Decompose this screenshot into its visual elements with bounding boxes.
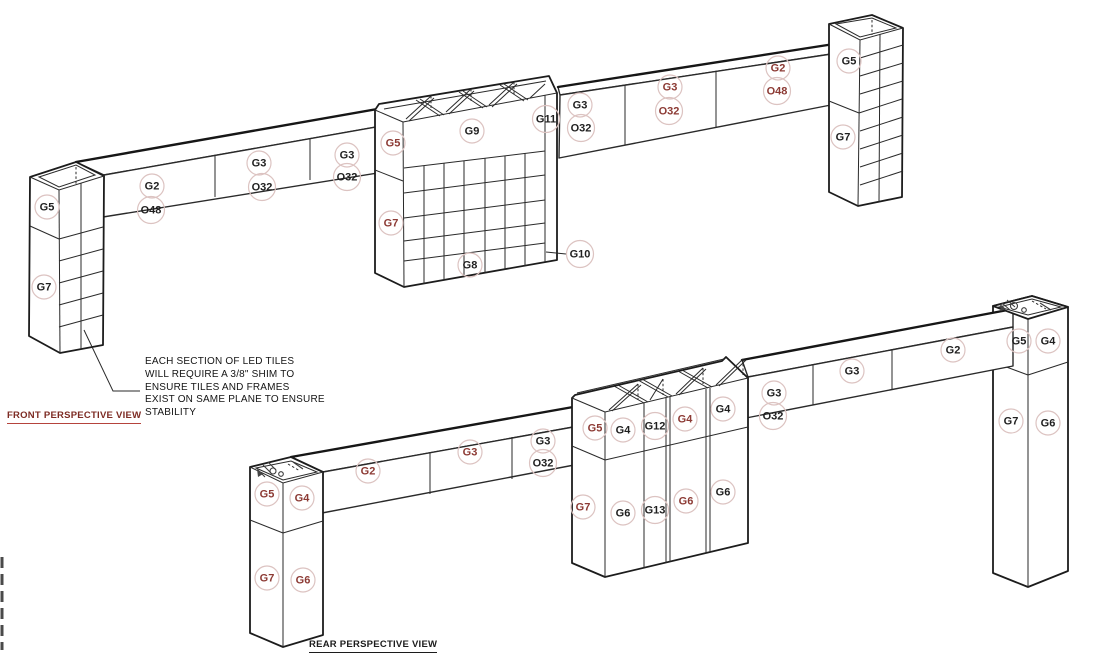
svg-text:G7: G7 [1004, 416, 1019, 428]
svg-text:G8: G8 [463, 260, 478, 272]
svg-text:O32: O32 [571, 123, 592, 135]
front-view-title: FRONT PERSPECTIVE VIEW [7, 410, 141, 424]
shim-annotation-line: STABILITY [145, 407, 325, 420]
svg-text:G6: G6 [679, 496, 694, 508]
shim-annotation-line: ENSURE TILES AND FRAMES [145, 382, 325, 395]
svg-text:G4: G4 [716, 404, 732, 416]
svg-text:G2: G2 [145, 181, 160, 193]
svg-text:G7: G7 [260, 573, 275, 585]
svg-text:G10: G10 [570, 249, 591, 261]
svg-text:G4: G4 [678, 414, 694, 426]
svg-text:O32: O32 [659, 106, 680, 118]
svg-text:G5: G5 [842, 56, 857, 68]
svg-text:G6: G6 [616, 508, 631, 520]
rear-view-drawing: G5G4G7G6G2G3G3O32G5G4G12G4G4G7G6G13G6G6G… [250, 296, 1068, 647]
front-right-column [829, 15, 903, 206]
front-left-column [29, 162, 104, 353]
svg-text:G4: G4 [616, 425, 632, 437]
svg-text:G3: G3 [252, 158, 267, 170]
svg-text:G7: G7 [384, 218, 399, 230]
svg-text:G4: G4 [1041, 336, 1057, 348]
svg-text:G3: G3 [536, 436, 551, 448]
shim-annotation-line: EXIST ON SAME PLANE TO ENSURE [145, 394, 325, 407]
svg-text:G7: G7 [576, 502, 591, 514]
svg-text:G5: G5 [1012, 336, 1027, 348]
svg-text:G3: G3 [845, 366, 860, 378]
svg-text:O32: O32 [252, 182, 273, 194]
svg-text:O48: O48 [141, 205, 162, 217]
svg-text:G7: G7 [836, 132, 851, 144]
front-center-led-box [375, 76, 557, 287]
svg-text:O32: O32 [533, 458, 554, 470]
svg-text:G7: G7 [37, 282, 52, 294]
shim-annotation-line: WILL REQUIRE A 3/8" SHIM TO [145, 369, 325, 382]
shim-annotation: EACH SECTION OF LED TILES WILL REQUIRE A… [145, 356, 325, 420]
svg-text:G5: G5 [40, 202, 55, 214]
svg-text:G3: G3 [767, 388, 782, 400]
svg-text:G6: G6 [1041, 418, 1056, 430]
svg-text:G3: G3 [463, 447, 478, 459]
svg-text:O32: O32 [763, 411, 784, 423]
svg-text:G6: G6 [296, 575, 311, 587]
front-beam-right [558, 44, 838, 158]
svg-text:G3: G3 [573, 100, 588, 112]
rear-center-box [572, 357, 748, 577]
front-view-drawing: G5G7G2O48G3O32G3O32G5G7G9G11G8G10G3O32G3… [29, 15, 903, 391]
svg-text:G2: G2 [361, 466, 376, 478]
perspective-diagram: G5G7G2O48G3O32G3O32G5G7G9G11G8G10G3O32G3… [0, 0, 1102, 661]
shim-annotation-line: EACH SECTION OF LED TILES [145, 356, 325, 369]
drawing-sheet: G5G7G2O48G3O32G3O32G5G7G9G11G8G10G3O32G3… [0, 0, 1102, 661]
rear-view-title: REAR PERSPECTIVE VIEW [309, 639, 437, 653]
svg-text:G3: G3 [663, 82, 678, 94]
svg-text:G5: G5 [260, 489, 275, 501]
front-beam-left [76, 108, 410, 217]
svg-text:O48: O48 [767, 86, 788, 98]
svg-text:O32: O32 [337, 172, 358, 184]
svg-text:G4: G4 [295, 493, 311, 505]
svg-text:G5: G5 [386, 138, 401, 150]
svg-text:G13: G13 [645, 505, 666, 517]
svg-text:G2: G2 [771, 63, 786, 75]
part-label-g10: G10 [567, 241, 594, 268]
svg-text:G2: G2 [946, 345, 961, 357]
svg-text:G3: G3 [340, 150, 355, 162]
svg-text:G6: G6 [716, 487, 731, 499]
svg-text:G11: G11 [536, 114, 556, 126]
svg-text:G5: G5 [588, 423, 603, 435]
svg-text:G9: G9 [465, 126, 480, 138]
svg-text:G12: G12 [645, 421, 666, 433]
rear-left-column [250, 457, 323, 647]
